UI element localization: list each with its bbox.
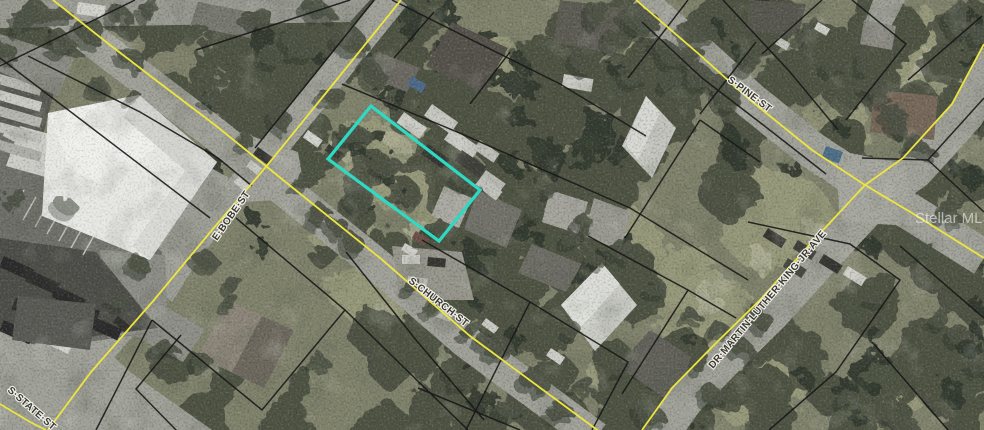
svg-text:Stellar MLS: Stellar MLS xyxy=(915,210,984,227)
